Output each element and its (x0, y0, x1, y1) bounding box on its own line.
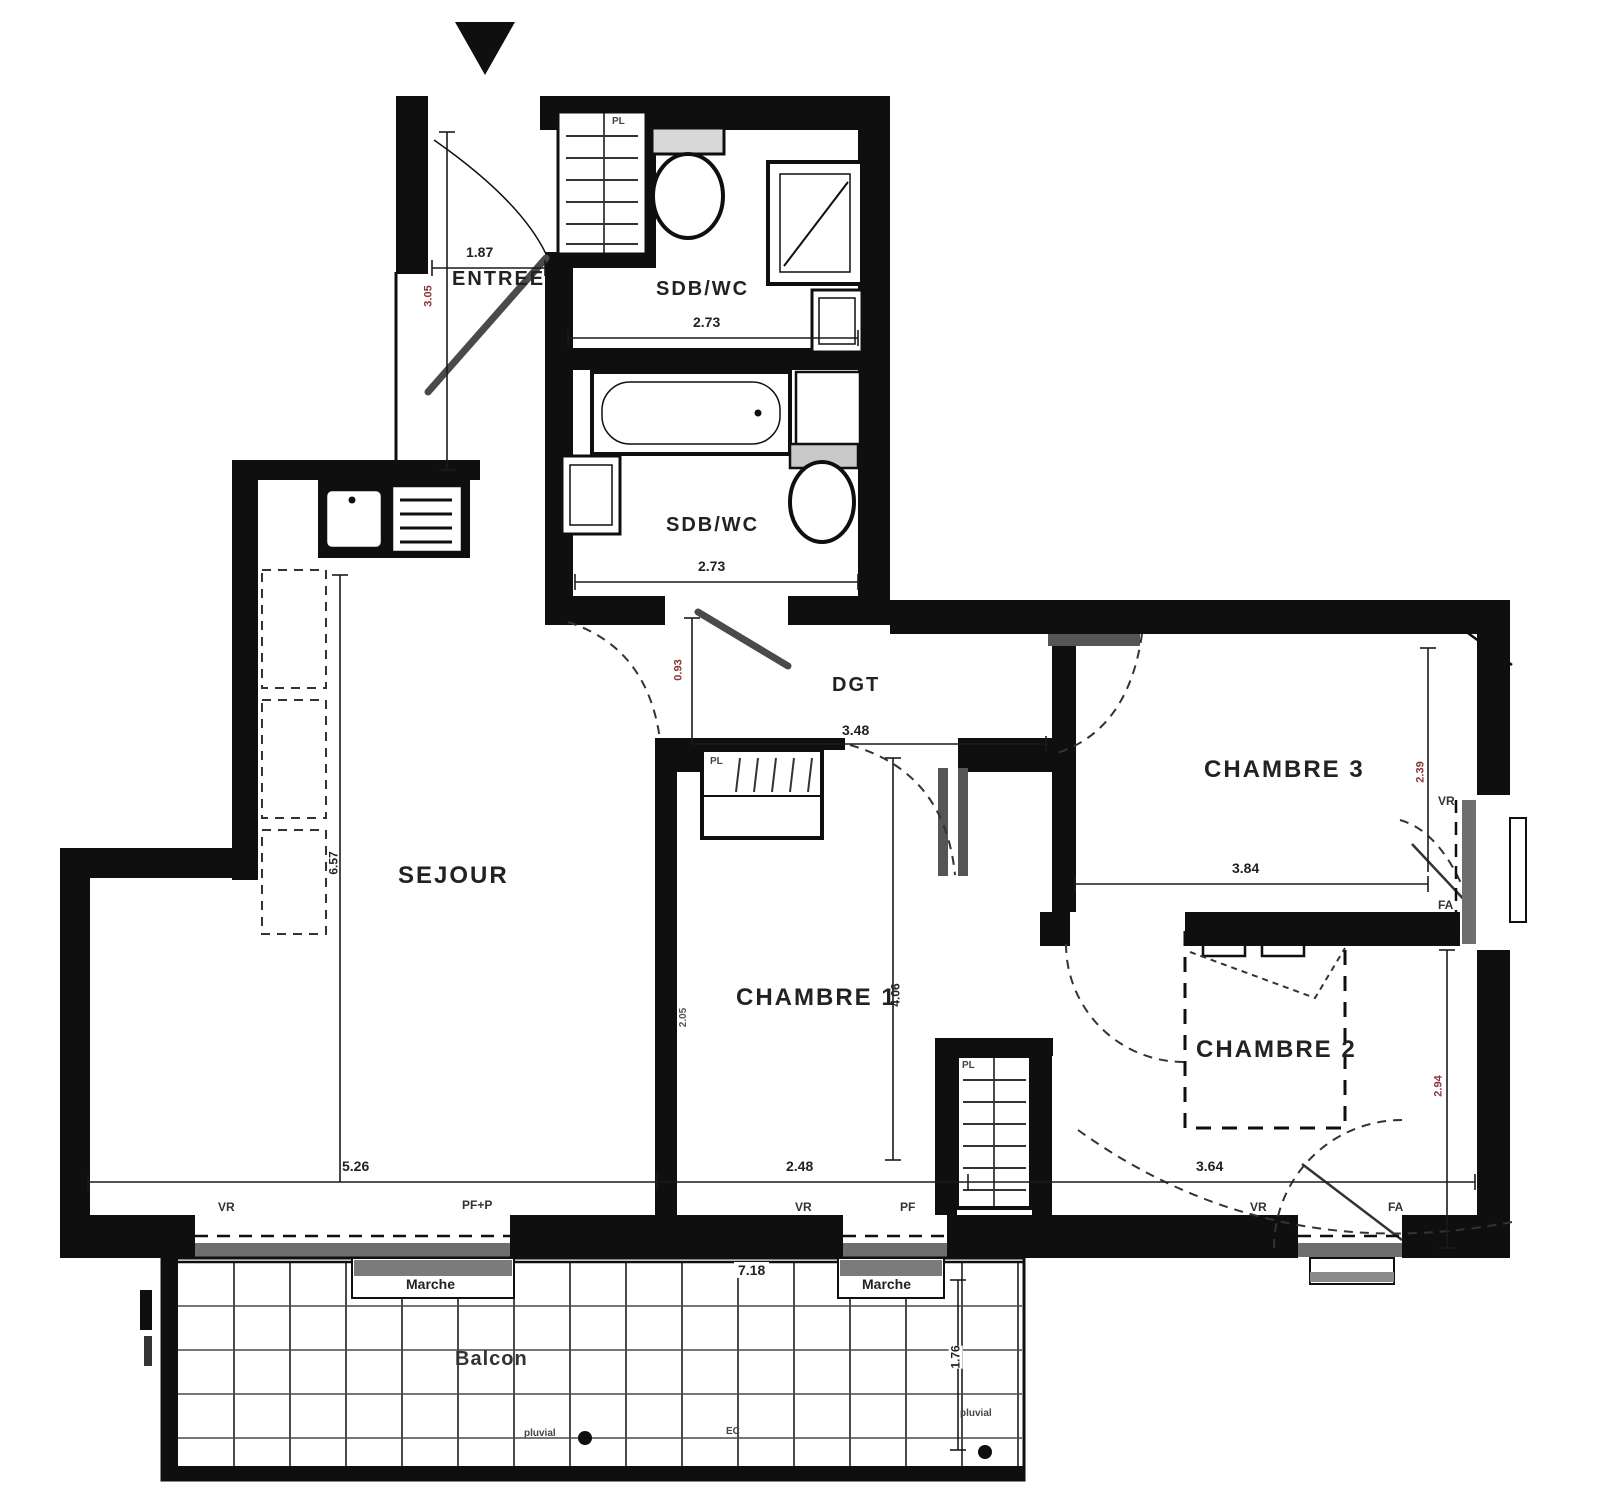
room-label-chambre3: CHAMBRE 3 (1204, 756, 1365, 784)
bathroom1-fixtures (652, 128, 862, 352)
toilet-icon (790, 462, 854, 542)
room-label-chambre2: CHAMBRE 2 (1196, 1036, 1357, 1064)
closet-label-pl: PL (612, 116, 625, 127)
window-label-pfp: PF+P (462, 1198, 492, 1212)
window-label-vr: VR (1438, 794, 1455, 808)
room-label-chambre1: CHAMBRE 1 (736, 984, 897, 1012)
dim-balcon-w: 7.18 (734, 1262, 769, 1278)
dim-entry-w: 1.87 (466, 244, 493, 260)
pocket-door (938, 768, 948, 876)
chambre3-outer-sill (1510, 818, 1526, 922)
ec-label: EC (726, 1426, 740, 1437)
window-label-pf: PF (900, 1200, 915, 1214)
toilet-icon (653, 154, 723, 238)
dim-sdb1-w: 2.73 (693, 314, 720, 330)
closet-label-pl: PL (962, 1060, 975, 1071)
cabinet-dashed (262, 570, 326, 688)
chambre3-window (1462, 800, 1476, 944)
dim-chambre1-h: 4.06 (889, 983, 903, 1006)
sejour-door-arc (568, 622, 660, 740)
chambre1-window (843, 1243, 947, 1257)
dimension-lines (88, 132, 1475, 1248)
entry-door-arc (434, 140, 546, 254)
pocket-door (958, 768, 968, 876)
dim-chambre1-side: 2.05 (678, 1008, 689, 1027)
drain-dot (578, 1431, 592, 1445)
drain-label: pluvial (960, 1408, 992, 1419)
chambre3-door-leaf (1048, 634, 1140, 646)
room-label-sejour: SEJOUR (398, 862, 509, 890)
step-label: Marche (406, 1276, 455, 1292)
dim-sejour-h: 6.57 (327, 851, 341, 874)
closet-label-pl: PL (710, 756, 723, 767)
dim-sejour-w: 5.26 (342, 1158, 369, 1174)
floor-plan: ENTREE SDB/WC SDB/WC DGT SEJOUR CHAMBRE … (0, 0, 1600, 1509)
dim-chambre2-w: 3.64 (1196, 1158, 1223, 1174)
entry-closet (558, 112, 646, 254)
dim-chambre1-w: 2.48 (786, 1158, 813, 1174)
cabinet-dashed (262, 830, 326, 934)
room-label-balcon: Balcon (455, 1348, 528, 1371)
chambre3-window-leaf (1412, 844, 1470, 906)
chambre2-door-arc (1066, 944, 1184, 1062)
window-label-fa: FA (1438, 898, 1453, 912)
dim-dgt-h: 0.93 (673, 659, 685, 680)
chambre2-window (1298, 1243, 1402, 1257)
dim-dgt-w: 3.48 (842, 722, 869, 738)
balcony-edge-mark (140, 1290, 152, 1330)
dim-chambre3-h: 2.39 (1415, 761, 1427, 782)
dim-chambre2-h: 2.94 (1433, 1075, 1445, 1096)
bed-dashed (1185, 928, 1345, 1128)
shower-icon (768, 162, 862, 284)
toilet-tank (652, 128, 724, 154)
dim-entry-h: 3.05 (423, 285, 435, 306)
entrance-arrow-icon (455, 22, 515, 75)
balcony-edge-mark (144, 1336, 152, 1366)
dgt-door-leaf (698, 612, 788, 666)
sejour-window (195, 1243, 510, 1257)
room-label-sdb1: SDB/WC (656, 278, 749, 301)
room-label-sdb2: SDB/WC (666, 514, 759, 537)
drain-dot (978, 1445, 992, 1459)
floor-plan-svg (0, 0, 1600, 1509)
dim-chambre3-w: 3.84 (1232, 860, 1259, 876)
window-label-fa: FA (1388, 1200, 1403, 1214)
chambre3-window-arc (1400, 820, 1468, 900)
drain-label: pluvial (524, 1428, 556, 1439)
room-label-dgt: DGT (832, 674, 880, 697)
cabinet-dashed (262, 700, 326, 818)
step-label: Marche (862, 1276, 911, 1292)
window-label-vr: VR (1250, 1200, 1267, 1214)
window-label-vr: VR (218, 1200, 235, 1214)
window-label-vr: VR (795, 1200, 812, 1214)
dim-sdb2-w: 2.73 (698, 558, 725, 574)
room-label-entree: ENTREE (452, 268, 545, 291)
dim-balcon-h: 1.76 (949, 1345, 963, 1368)
